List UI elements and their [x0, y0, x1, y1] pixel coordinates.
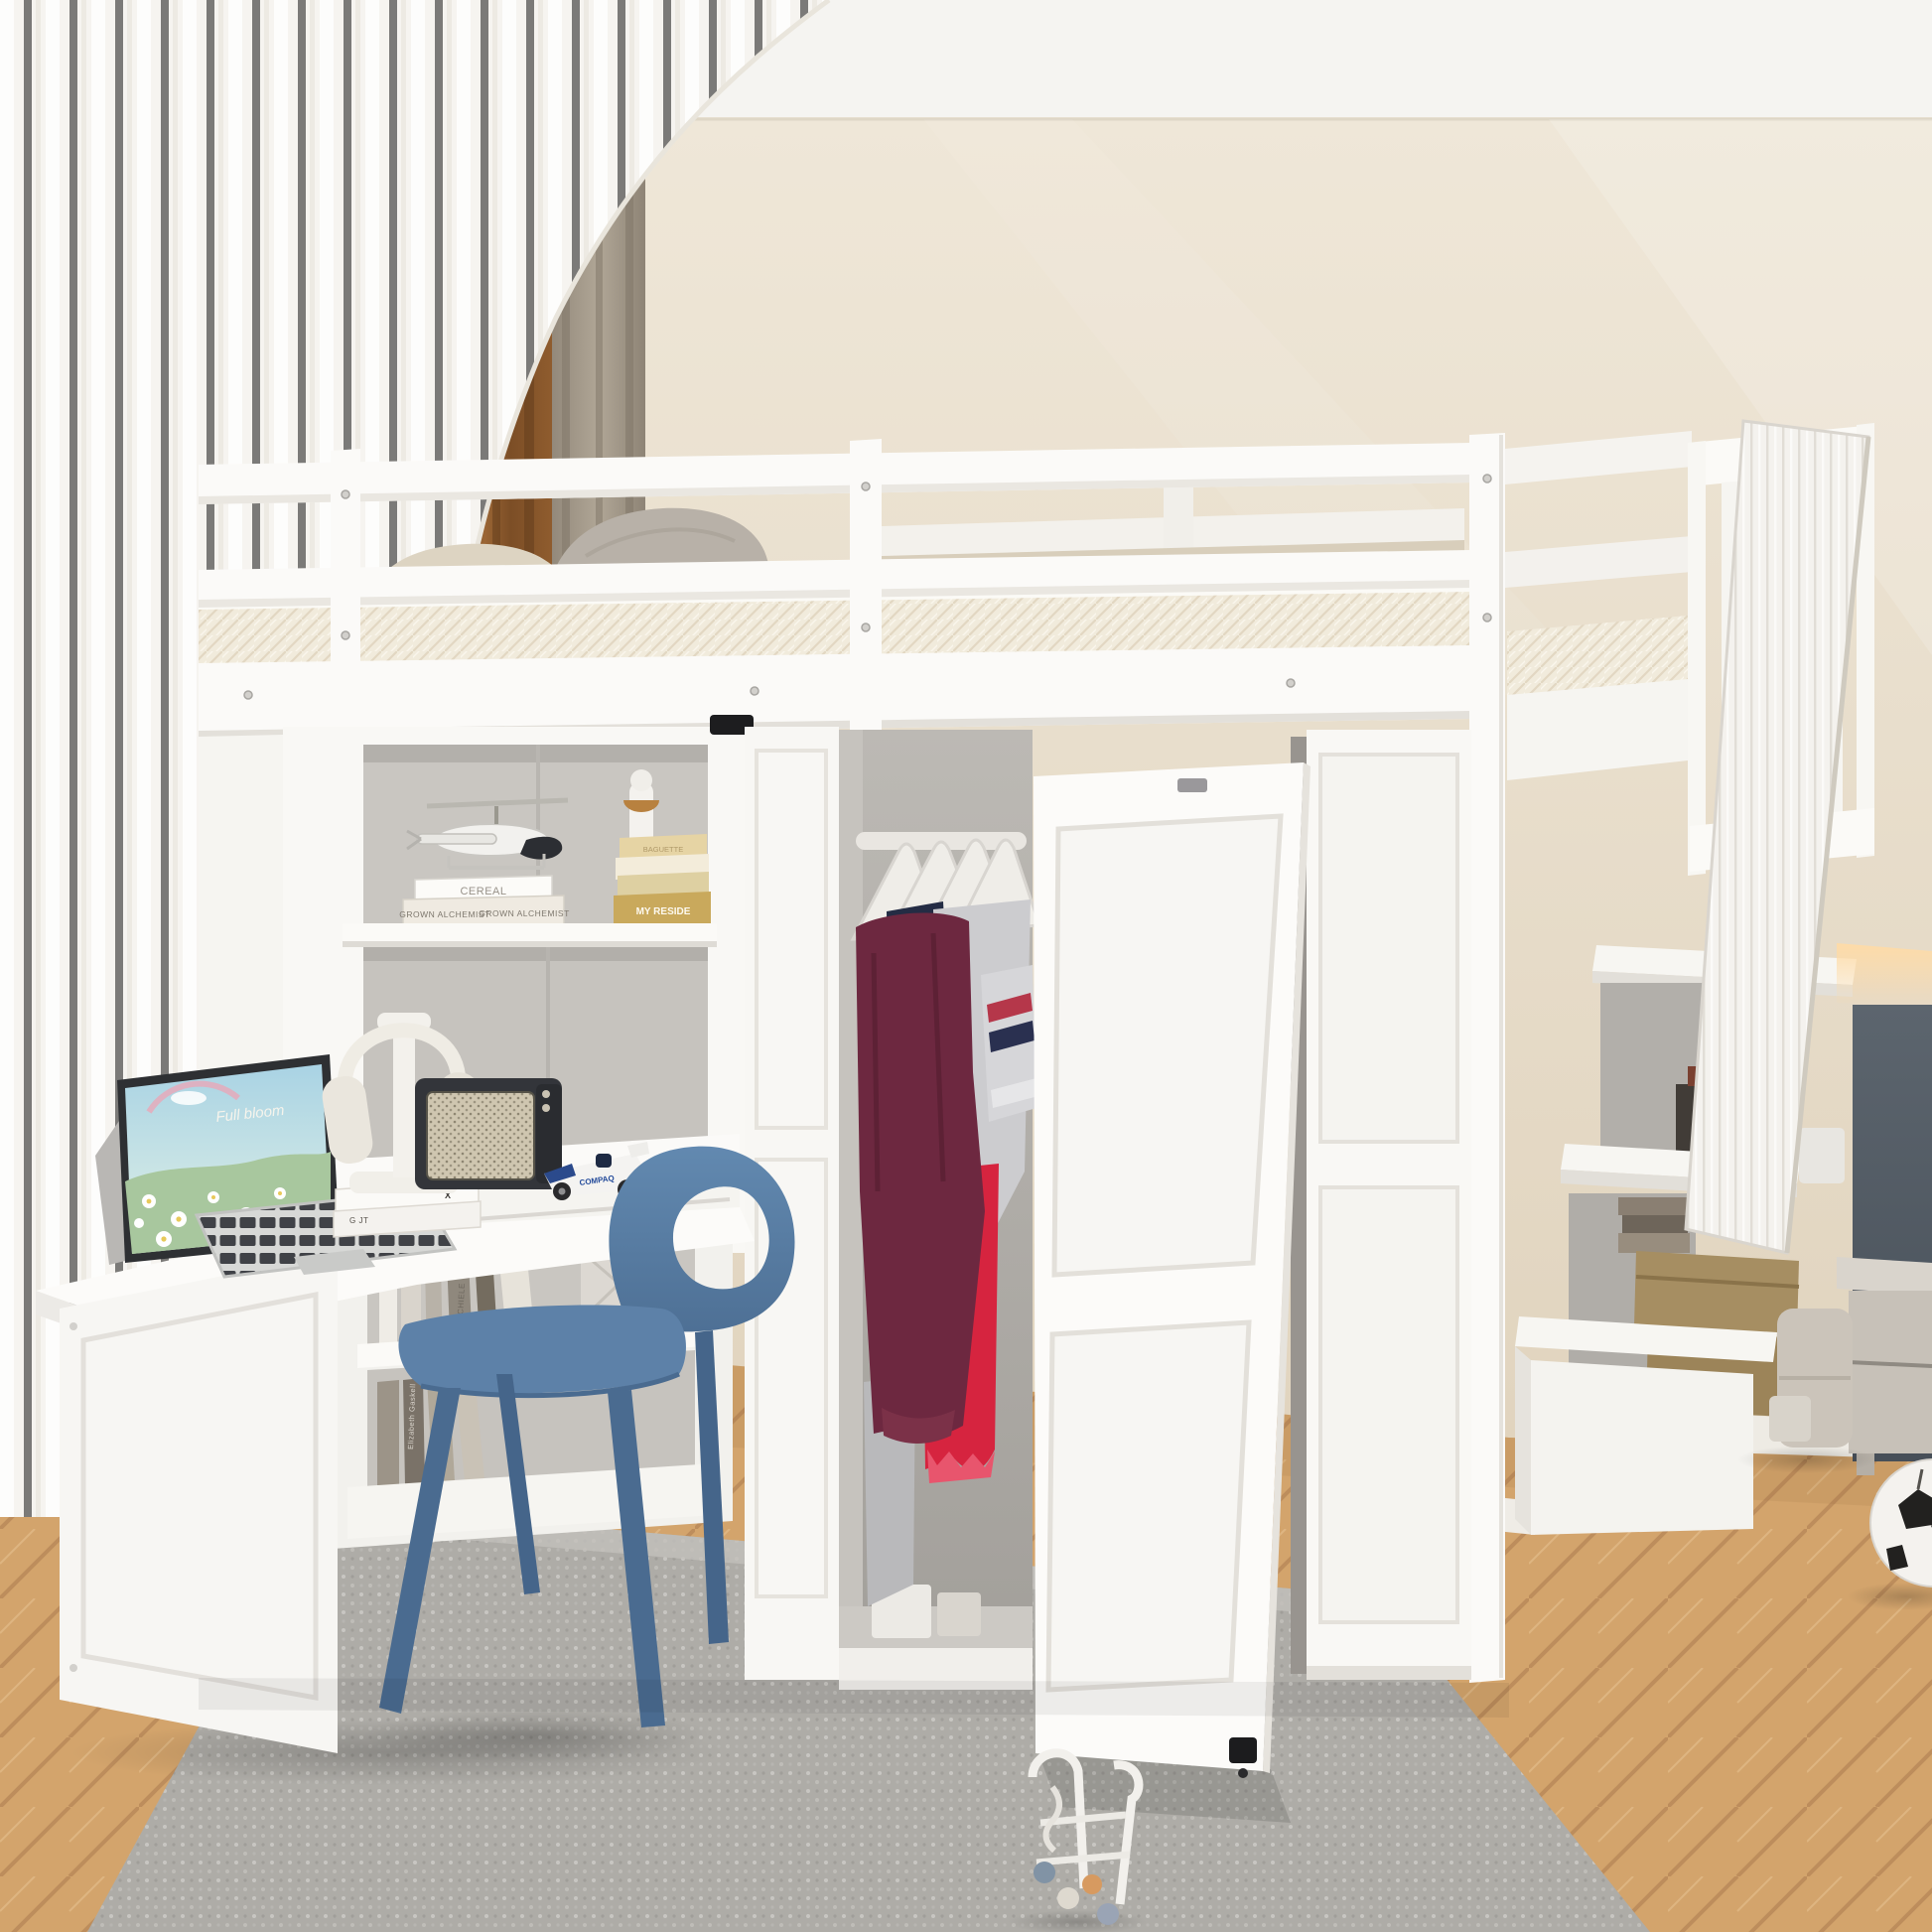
scene-canvas: CEREAL GROWN ALCHEMIST GROWN ALCHEMIST B…: [0, 0, 1932, 1932]
wardrobe-door-open: [1034, 762, 1311, 1778]
toy-bead: [1034, 1862, 1055, 1883]
compartment-bottom-shadow: [363, 947, 708, 961]
bedroom-photo: CEREAL GROWN ALCHEMIST GROWN ALCHEMIST B…: [0, 0, 1932, 1932]
speaker-knob: [542, 1090, 550, 1098]
car-cockpit: [596, 1154, 612, 1168]
shelf-board-edge: [343, 941, 717, 947]
speaker-grille: [427, 1092, 534, 1179]
closed-front-panel-lower: [1320, 1187, 1457, 1622]
khaki-box-1: [1634, 1251, 1799, 1334]
pouf-shadow: [1737, 1446, 1876, 1473]
wallpaper-cloud: [171, 1091, 207, 1105]
toy-bead: [1057, 1887, 1079, 1909]
toy-bead: [1097, 1903, 1119, 1925]
book-text: G JT: [349, 1216, 368, 1225]
speaker-knob: [542, 1104, 550, 1112]
closed-front-panel-upper: [1320, 755, 1457, 1142]
retro-speaker: [415, 1078, 562, 1189]
stand-pillar: [393, 1021, 415, 1177]
book-title-grown-alchemist-2: GROWN ALCHEMIST: [479, 908, 570, 918]
stair-step-box-3: [1531, 1360, 1753, 1535]
latch-pin: [1238, 1768, 1248, 1778]
stored-books: [1618, 1197, 1690, 1253]
book-title-grown-alchemist: GROWN ALCHEMIST: [399, 909, 490, 919]
storage-box-small-2: [937, 1592, 981, 1636]
panel-screw: [69, 1322, 77, 1330]
warm-led-glow: [1837, 943, 1932, 1009]
door-panel-lower: [1048, 1322, 1249, 1690]
book-title-my-reside: MY RESIDE: [636, 906, 691, 917]
wardrobe-inner-side: [839, 730, 863, 1678]
door-panel-upper: [1054, 816, 1281, 1275]
white-basket: [1799, 1128, 1845, 1183]
door-bottom-latch: [1229, 1737, 1257, 1763]
maroon-sweater: [856, 912, 985, 1444]
wardrobe-floor: [839, 1606, 1033, 1652]
book-title-baguette: BAGUETTE: [643, 845, 683, 854]
shelf-book-stack: CEREAL GROWN ALCHEMIST GROWN ALCHEMIST: [399, 876, 570, 929]
chair-seat: [398, 1306, 686, 1394]
step-stool: [1769, 1396, 1811, 1442]
compartment-top-shadow: [363, 745, 708, 762]
step-box-side: [1515, 1346, 1531, 1535]
book-title-cereal: CEREAL: [460, 886, 506, 897]
door-top-plate: [1177, 778, 1207, 792]
panel-screw: [69, 1664, 77, 1672]
toy-bead: [1082, 1874, 1102, 1894]
gold-book-stack: BAGUETTE MY RESIDE: [614, 834, 711, 925]
closed-front-base-shadow: [1307, 1666, 1471, 1680]
